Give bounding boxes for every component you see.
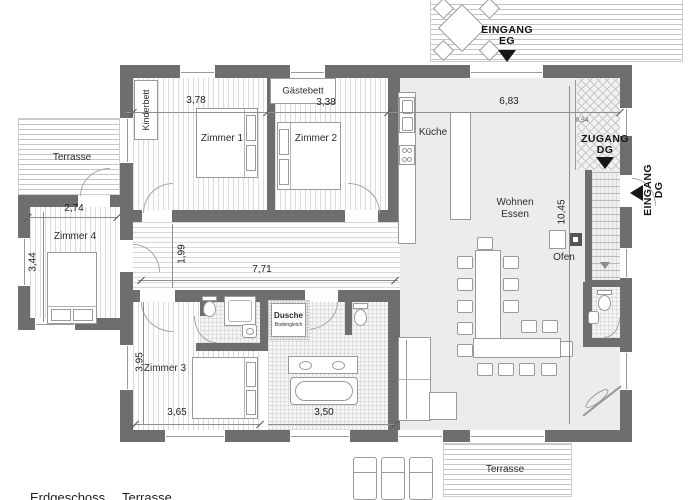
bed-zimmer3 (192, 357, 258, 419)
sofa (398, 337, 431, 421)
sun-lounger (353, 457, 377, 500)
dining-table-vertical (475, 250, 501, 342)
toilet-bowl (354, 309, 367, 326)
eingang-eg-label: EINGANG EG (481, 25, 533, 47)
toilet-bowl (203, 301, 216, 317)
dim-bad-width: 3,50 (314, 407, 333, 418)
dim-zimmer4-depth: 3,44 (28, 252, 39, 271)
dim-flur-length: 7,71 (252, 264, 271, 275)
eingang-dg-label: EINGANG DG (643, 157, 687, 223)
glass-partition (575, 80, 576, 170)
chair (477, 363, 493, 376)
dimension-line (138, 280, 398, 281)
kitchen-island (450, 112, 471, 220)
side-table (429, 392, 457, 420)
sun-lounger (409, 457, 433, 500)
room-label-wohnen: Wohnen (496, 197, 533, 208)
floor-plan: Kinderbett Gästebett (0, 0, 700, 500)
room-label-ofen: Ofen (553, 252, 575, 263)
window (620, 248, 632, 278)
chair (457, 344, 473, 357)
dimension-line (43, 212, 44, 322)
dim-flur-width: 1,99 (177, 244, 188, 263)
wall (260, 302, 268, 351)
wc-dg-sink (588, 311, 599, 324)
eingang-eg-arrow-icon (498, 50, 516, 62)
chair (477, 237, 493, 250)
wall (592, 280, 620, 287)
room-label-kueche: Küche (419, 127, 447, 138)
ensuite-shower (224, 296, 256, 326)
ensuite-sink (242, 324, 257, 338)
door-opening (140, 290, 175, 302)
chair (503, 256, 519, 269)
zugang-dg-label: ZUGANG DG (581, 134, 629, 156)
chair (503, 278, 519, 291)
chimney (569, 233, 582, 246)
chair (503, 300, 519, 313)
dusche-label: Dusche (274, 311, 303, 320)
kinderbett-label: Kinderbett (141, 89, 151, 130)
dim-zimmer2-width: 3,38 (316, 97, 335, 108)
room-label-zimmer1: Zimmer 1 (201, 133, 243, 144)
sun-lounger (381, 457, 405, 500)
window (180, 65, 215, 78)
window (165, 430, 225, 442)
chair (457, 300, 473, 313)
chair (457, 322, 473, 335)
dim-zimmer1-width: 3,78 (186, 95, 205, 106)
window (470, 430, 545, 442)
chair (457, 256, 473, 269)
dusche-sub-label: Bodengleich (275, 322, 303, 328)
wall (543, 65, 632, 78)
eingang-dg-arrow-icon (630, 185, 643, 201)
dimension-line (172, 224, 173, 288)
terrace-door-opening (398, 430, 443, 442)
window (120, 345, 133, 390)
zugang-dg-arrow-icon (596, 157, 614, 169)
room-label-terrasse-left: Terrasse (53, 152, 91, 163)
legend-left: Erdgeschoss (30, 490, 105, 500)
room-label-essen: Essen (501, 209, 529, 220)
chair (541, 363, 557, 376)
wall (345, 302, 352, 335)
door-opening (120, 240, 133, 272)
gaestebett-label: Gästebett (282, 86, 323, 97)
dim-zimmer3-width: 3,65 (167, 407, 186, 418)
kitchen-sink (399, 97, 415, 133)
dining-table-horizontal (473, 338, 561, 358)
chair (498, 363, 514, 376)
dimension-line (268, 424, 396, 425)
wall (196, 343, 268, 351)
dimension-line (26, 217, 118, 218)
chair (542, 320, 558, 333)
room-label-zimmer2: Zimmer 2 (295, 133, 337, 144)
wall (585, 170, 592, 282)
window (620, 108, 632, 136)
dimension-line (126, 112, 620, 113)
dim-wohnbereich-depth: 10,45 (557, 199, 568, 224)
wall (583, 338, 632, 347)
stair-direction-arrow-icon (600, 262, 610, 269)
bathroom-vanity (288, 356, 358, 374)
window (290, 430, 350, 442)
room-label-zimmer4: Zimmer 4 (54, 231, 96, 242)
entrance-eg-door-opening (470, 65, 543, 78)
dusche-label-box: Dusche Bodengleich (271, 303, 306, 337)
dim-zugang-width: 0,54 (576, 117, 589, 124)
room-label-zimmer3: Zimmer 3 (144, 363, 186, 374)
bed-zimmer4 (47, 252, 97, 324)
chair (519, 363, 535, 376)
chair (457, 278, 473, 291)
chair (521, 320, 537, 333)
cooktop (399, 145, 415, 165)
dimension-line (134, 424, 260, 425)
legend-right: Terrasse (122, 490, 172, 500)
window (290, 65, 325, 78)
kinderbett-crib: Kinderbett (134, 80, 158, 140)
toilet-bowl (598, 295, 611, 311)
bathtub (290, 377, 358, 405)
chair (560, 341, 573, 357)
ofen-stove (549, 230, 566, 249)
dim-zimmer4-width: 2,74 (64, 203, 83, 214)
room-label-terrasse-bottom: Terrasse (486, 464, 524, 475)
window (620, 352, 632, 390)
dim-wohnbereich-width: 6,83 (499, 96, 518, 107)
window (120, 118, 133, 163)
